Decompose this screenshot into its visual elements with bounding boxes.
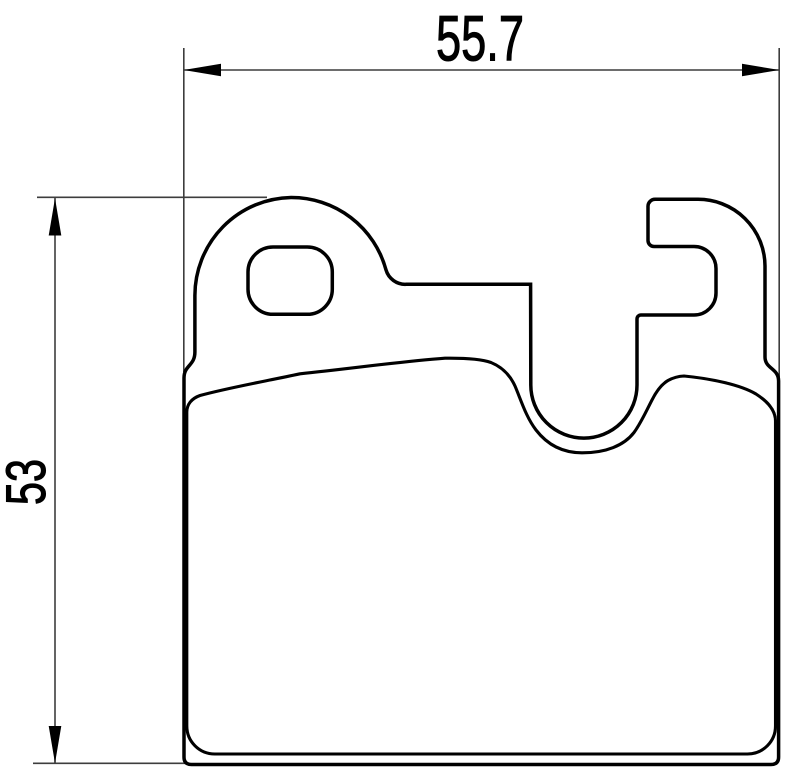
svg-text:53: 53	[0, 459, 57, 505]
svg-text:55.7: 55.7	[436, 3, 524, 75]
